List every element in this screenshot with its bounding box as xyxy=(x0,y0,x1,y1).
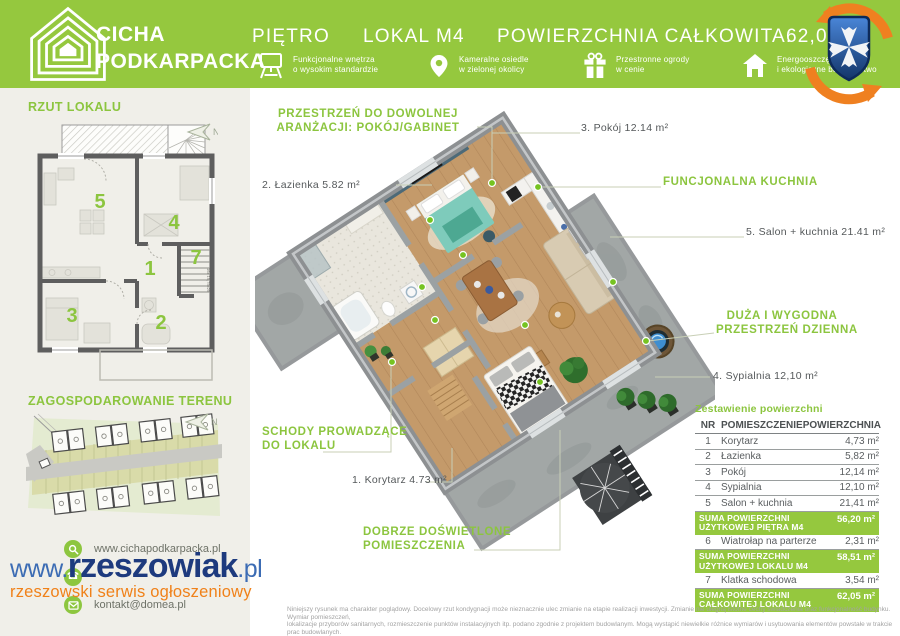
email-address[interactable]: kontakt@domea.pl xyxy=(94,599,186,611)
label-line: DO LOKALU xyxy=(262,440,407,454)
label-room3: 3. Pokój 12.14 m² xyxy=(581,122,668,134)
room-number-4: 4 xyxy=(168,212,180,234)
col-nr: NR xyxy=(695,420,721,431)
floor-label: PIĘTRO xyxy=(252,26,330,48)
table-row: 7 Klatka schodowa 3,54 m² xyxy=(695,573,879,589)
feature-text: w zielonej okolicy xyxy=(459,65,529,75)
room-number-7: 7 xyxy=(190,247,201,269)
label-stairs: SCHODY PROWADZĄCE DO LOKALU xyxy=(262,426,407,453)
website-url[interactable]: www.cichapodkarpacka.pl xyxy=(94,543,221,555)
label-bathroom: 2. Łazienka 5.82 m² xyxy=(262,179,360,191)
mail-icon xyxy=(64,596,82,614)
table-row: 4 Sypialnia 12,10 m² xyxy=(695,481,879,497)
brand-line2: PODKARPACKA xyxy=(96,48,266,75)
stairs-dimension-note: 16x 19,75x25 xyxy=(206,268,211,293)
contact-website[interactable]: www.cichapodkarpacka.pl xyxy=(64,540,221,558)
label-living-zone: DUŻA I WYGODNA PRZESTRZEŃ DZIENNA xyxy=(716,310,848,337)
contact-email[interactable]: kontakt@domea.pl xyxy=(64,596,186,614)
feature-interiors: Funkcjonalne wnętrzao wysokim standardzi… xyxy=(258,51,378,81)
label-arrangement: PRZESTRZEŃ DO DOWOLNEJ ARANŻACJI: POKÓJ/… xyxy=(258,108,478,135)
feature-text: Przestronne ogrody xyxy=(616,55,689,65)
site-section-title: ZAGOSPODAROWANIE TERENU xyxy=(28,394,232,408)
label-line: DOBRZE DOŚWIETLONE xyxy=(363,526,511,540)
disclaimer-line: Niniejszy rysunek ma charakter poglądowy… xyxy=(287,606,895,621)
room-number-3: 3 xyxy=(66,305,77,327)
feature-text: w cenie xyxy=(616,65,689,75)
table-row: 3 Pokój 12,14 m² xyxy=(695,465,879,481)
feature-text: Kameralne osiedle xyxy=(459,55,529,65)
col-name: POMIESZCZENIE xyxy=(721,420,803,431)
phone-icon: ☎ xyxy=(64,568,82,586)
feature-text: o wysokim standardzie xyxy=(293,65,378,75)
site-plan: N xyxy=(26,412,224,524)
north-label: N xyxy=(213,127,218,137)
table-row: 2 Łazienka 5,82 m² xyxy=(695,450,879,466)
label-bedroom: 4. Sypialnia 12,10 m² xyxy=(713,370,818,382)
label-line: PRZESTRZEŃ DZIENNA xyxy=(716,324,848,338)
projector-icon xyxy=(258,51,284,81)
col-area: POWIERZCHNIA xyxy=(803,420,881,431)
label-living: 5. Salon + kuchnia 21.41 m² xyxy=(746,226,885,238)
label-corridor: 1. Korytarz 4.73 m² xyxy=(352,474,447,486)
brand-line1: CICHA xyxy=(96,21,266,48)
map-pin-icon xyxy=(428,51,450,81)
contact-phone[interactable]: ☎ xyxy=(64,568,94,586)
brand-name: CICHA PODKARPACKA xyxy=(96,21,266,75)
label-line: DUŻA I WYGODNA xyxy=(716,310,848,324)
disclaimer-text: Niniejszy rysunek ma charakter poglądowy… xyxy=(287,606,895,636)
room-number-1: 1 xyxy=(144,258,155,280)
header-bar: CICHA PODKARPACKA PIĘTRO LOKAL M4 POWIER… xyxy=(0,0,900,88)
unit-label: LOKAL M4 xyxy=(363,26,465,48)
label-line: POMIESZCZENIA xyxy=(363,540,511,554)
plan-section-title: RZUT LOKALU xyxy=(28,100,121,114)
gift-icon xyxy=(583,51,607,81)
table-row: 1 Korytarz 4,73 m² xyxy=(695,434,879,450)
table-header-row: NR POMIESZCZENIE POWIERZCHNIA xyxy=(695,418,879,434)
label-line: PRZESTRZEŃ DO DOWOLNEJ xyxy=(258,108,478,122)
search-icon xyxy=(64,540,82,558)
table-summary-row: SUMA POWIERZCHNI UŻYTKOWEJ PIĘTRA M4 56,… xyxy=(695,512,879,535)
sidebar: RZUT LOKALU xyxy=(0,88,250,636)
table-row: 5 Salon + kuchnia 21,41 m² xyxy=(695,496,879,512)
room-number-5: 5 xyxy=(94,191,105,213)
total-area-label: POWIERZCHNIA CAŁKOWITA: xyxy=(497,26,792,48)
area-summary-table: Zestawienie powierzchni NR POMIESZCZENIE… xyxy=(695,403,879,612)
house-icon xyxy=(742,51,768,81)
feature-location: Kameralne osiedlew zielonej okolicy xyxy=(428,51,529,81)
label-light: DOBRZE DOŚWIETLONE POMIESZCZENIA xyxy=(363,526,511,553)
label-kitchen: FUNCJONALNA KUCHNIA xyxy=(663,176,818,190)
floor-plan-2d: 16x 19,75x25 5 4 1 7 3 2 N xyxy=(28,118,218,390)
table-row: 6 Wiatrołap na parterze 2,31 m² xyxy=(695,535,879,551)
feature-gardens: Przestronne ogrodyw cenie xyxy=(583,51,689,81)
label-line: ARANŻACJI: POKÓJ/GABINET xyxy=(258,122,478,136)
north-label: N xyxy=(211,417,218,427)
disclaimer-line: lokalizacje przyborów sanitarnych, rozmi… xyxy=(287,621,895,636)
brochure-page: CICHA PODKARPACKA PIĘTRO LOKAL M4 POWIER… xyxy=(0,0,900,636)
table-summary-row: SUMA POWIERZCHNI UŻYTKOWEJ LOKALU M4 58,… xyxy=(695,550,879,573)
table-title: Zestawienie powierzchni xyxy=(695,403,879,415)
label-line: SCHODY PROWADZĄCE xyxy=(262,426,407,440)
feature-text: Funkcjonalne wnętrza xyxy=(293,55,378,65)
room-number-2: 2 xyxy=(155,312,166,334)
